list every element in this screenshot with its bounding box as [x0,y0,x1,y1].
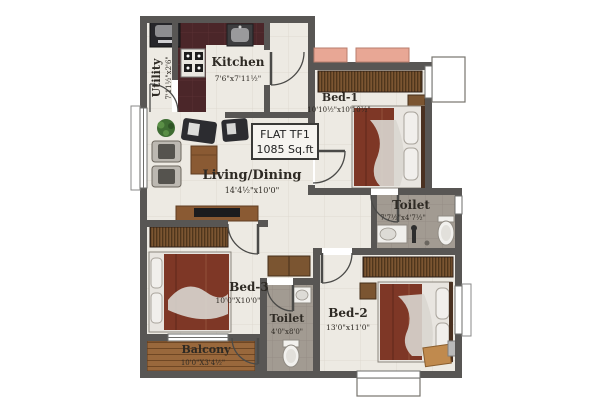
wall-bed2-top [352,248,462,255]
living-dim: 14'4½"x10'0" [225,186,280,195]
toilet1-dim: 7'7½"x4'7½" [380,214,426,222]
kitchen-dim: 7'6"x7'11½" [215,74,261,83]
wall-bed3-top-stub [258,220,268,227]
bed2-window [455,286,462,334]
bed3-wardrobe [150,227,228,247]
wall-bed3-top [140,220,228,227]
bed2-bottom-window-bumpout [357,378,420,396]
floor-plan-drawing: Utility 7'11½"x2'6" Kitchen 7'6"x7'11½" … [0,0,600,400]
bed2-bench-icon [423,344,451,366]
bed1-window-bumpout [432,57,465,102]
bed1-ledge-right [356,48,409,62]
wall-toilet2-top [293,278,313,285]
living-label: Living/Dining [202,168,301,183]
wall-kitchen-right-upper [264,23,270,50]
wall-bed1-top [308,62,432,70]
wall-left [140,16,147,378]
bed3-label: Bed-3 [229,280,269,294]
toilet2-dim: 4'0"x8'0" [271,328,303,336]
wall-bed1-bottom-right [398,188,462,195]
flat-label-line2: 1085 Sq.ft [257,143,315,156]
bed2-window-bumpout [462,284,471,336]
toilet2-sink-icon [293,287,311,303]
toilet1-wc-icon [438,216,454,245]
utility-dim: 7'11½"x2'6" [165,56,173,99]
bed1-ledge-left [314,48,347,62]
toilet2-label: Toilet [270,312,306,325]
wall-bed1-left-lower [308,185,315,195]
bed2-label: Bed-2 [328,306,368,320]
toilet2-wc-icon [283,340,299,367]
wall-right [455,188,462,378]
flat-label-line1: FLAT TF1 [260,128,310,141]
bed2-bottom-window [357,371,420,378]
balcony-dim: 10'0"X3'4½" [181,359,225,367]
kitchen-sink-icon [227,24,253,46]
bed1-dim: 10'10½"x10'10½" [307,106,370,114]
bed2-side-table [360,283,376,299]
toilet1-label: Toilet [392,198,430,212]
bed1-label: Bed-1 [322,91,358,104]
balcony-label: Balcony [181,343,231,356]
utility-label: Utility [150,58,163,97]
bed3-bed-icon [149,252,231,332]
floor-plan: Utility 7'11½"x2'6" Kitchen 7'6"x7'11½" … [0,0,600,400]
foyer-floor [270,23,308,112]
bed1-wardrobe [318,71,422,92]
passage-floor [313,195,371,248]
bed3-dim: 10'0"X10'0" [216,296,261,305]
wall-center-vertical [313,248,320,378]
bed2-wardrobe [363,257,453,277]
wall-kitchen-bottom [225,112,315,118]
tv-unit-icon [176,206,258,221]
plant-icon [157,119,175,137]
toilet1-drain-icon [425,241,430,246]
toilet1-sink-icon [377,225,407,243]
bed2-dim: 13'0"x11'0" [326,323,370,332]
wall-bed1-bottom-left [308,188,371,195]
living-window-bumpout [131,106,140,190]
wall-top [140,16,315,23]
bed1-window [425,66,432,98]
kitchen-label: Kitchen [212,55,265,69]
stove-icon [181,49,205,77]
bed1-bed-icon [352,106,426,188]
kitchen-door-gap [264,50,270,85]
flat-label-box: FLAT TF1 1085 Sq.ft [252,124,318,159]
toilet1-window [455,196,462,214]
